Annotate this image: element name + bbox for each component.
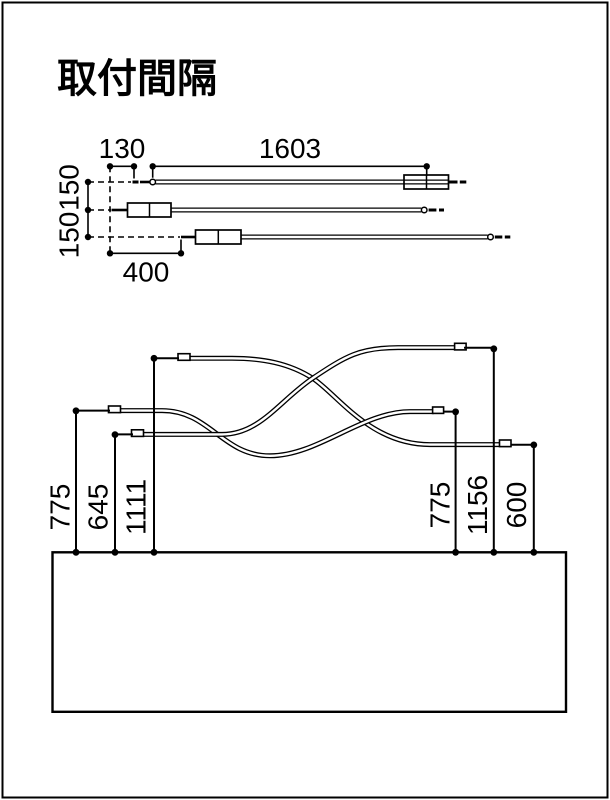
diagram-svg: 取付間隔 (0, 0, 610, 800)
dim-dot (85, 207, 91, 213)
dim-label-right-775: 775 (425, 482, 456, 529)
dim-label-130: 130 (99, 133, 146, 164)
arm3-right-cap (455, 343, 467, 350)
arm3-left-cap (132, 430, 144, 437)
dim-dot (107, 250, 113, 256)
dim-label-400: 400 (123, 257, 170, 288)
dim-dot (490, 549, 497, 556)
row3-connector-circle (488, 234, 494, 240)
row1-connector-circle (150, 179, 156, 185)
installation-spacing-diagram: 取付間隔 (0, 0, 610, 800)
dim-label-150-a: 150 (54, 164, 85, 211)
dim-dot (131, 163, 137, 169)
dim-dot (85, 234, 91, 240)
dim-dot (424, 163, 430, 169)
dim-dot (178, 250, 184, 256)
dim-label-right-1156: 1156 (462, 475, 493, 535)
dim-dot (112, 431, 119, 438)
dim-label-left-1111: 1111 (121, 479, 152, 535)
row2-connector-circle (421, 207, 427, 213)
dim-label-left-775: 775 (45, 484, 76, 531)
arm2-left-cap (109, 406, 121, 413)
dim-label-150-b: 150 (54, 212, 85, 259)
dim-dot (150, 163, 156, 169)
dim-label-1603: 1603 (259, 133, 321, 164)
dim-dot (107, 163, 113, 169)
dim-dot (73, 549, 80, 556)
arm1-left-cap (178, 354, 190, 361)
dim-dot (112, 549, 119, 556)
arm1-right-cap (500, 440, 512, 447)
counter-cabinet (53, 552, 567, 712)
page-title: 取付間隔 (57, 57, 217, 101)
dim-dot (452, 408, 459, 415)
dim-dot (73, 407, 80, 414)
dim-dot (452, 549, 459, 556)
dim-dot (490, 345, 497, 352)
dim-dot (530, 442, 537, 449)
dim-dot (151, 355, 158, 362)
dim-label-left-645: 645 (83, 484, 114, 531)
dim-dot (151, 549, 158, 556)
arm2-right-cap (433, 407, 444, 413)
dim-label-right-600: 600 (501, 482, 532, 529)
dim-dot (85, 179, 91, 185)
dim-dot (530, 549, 537, 556)
